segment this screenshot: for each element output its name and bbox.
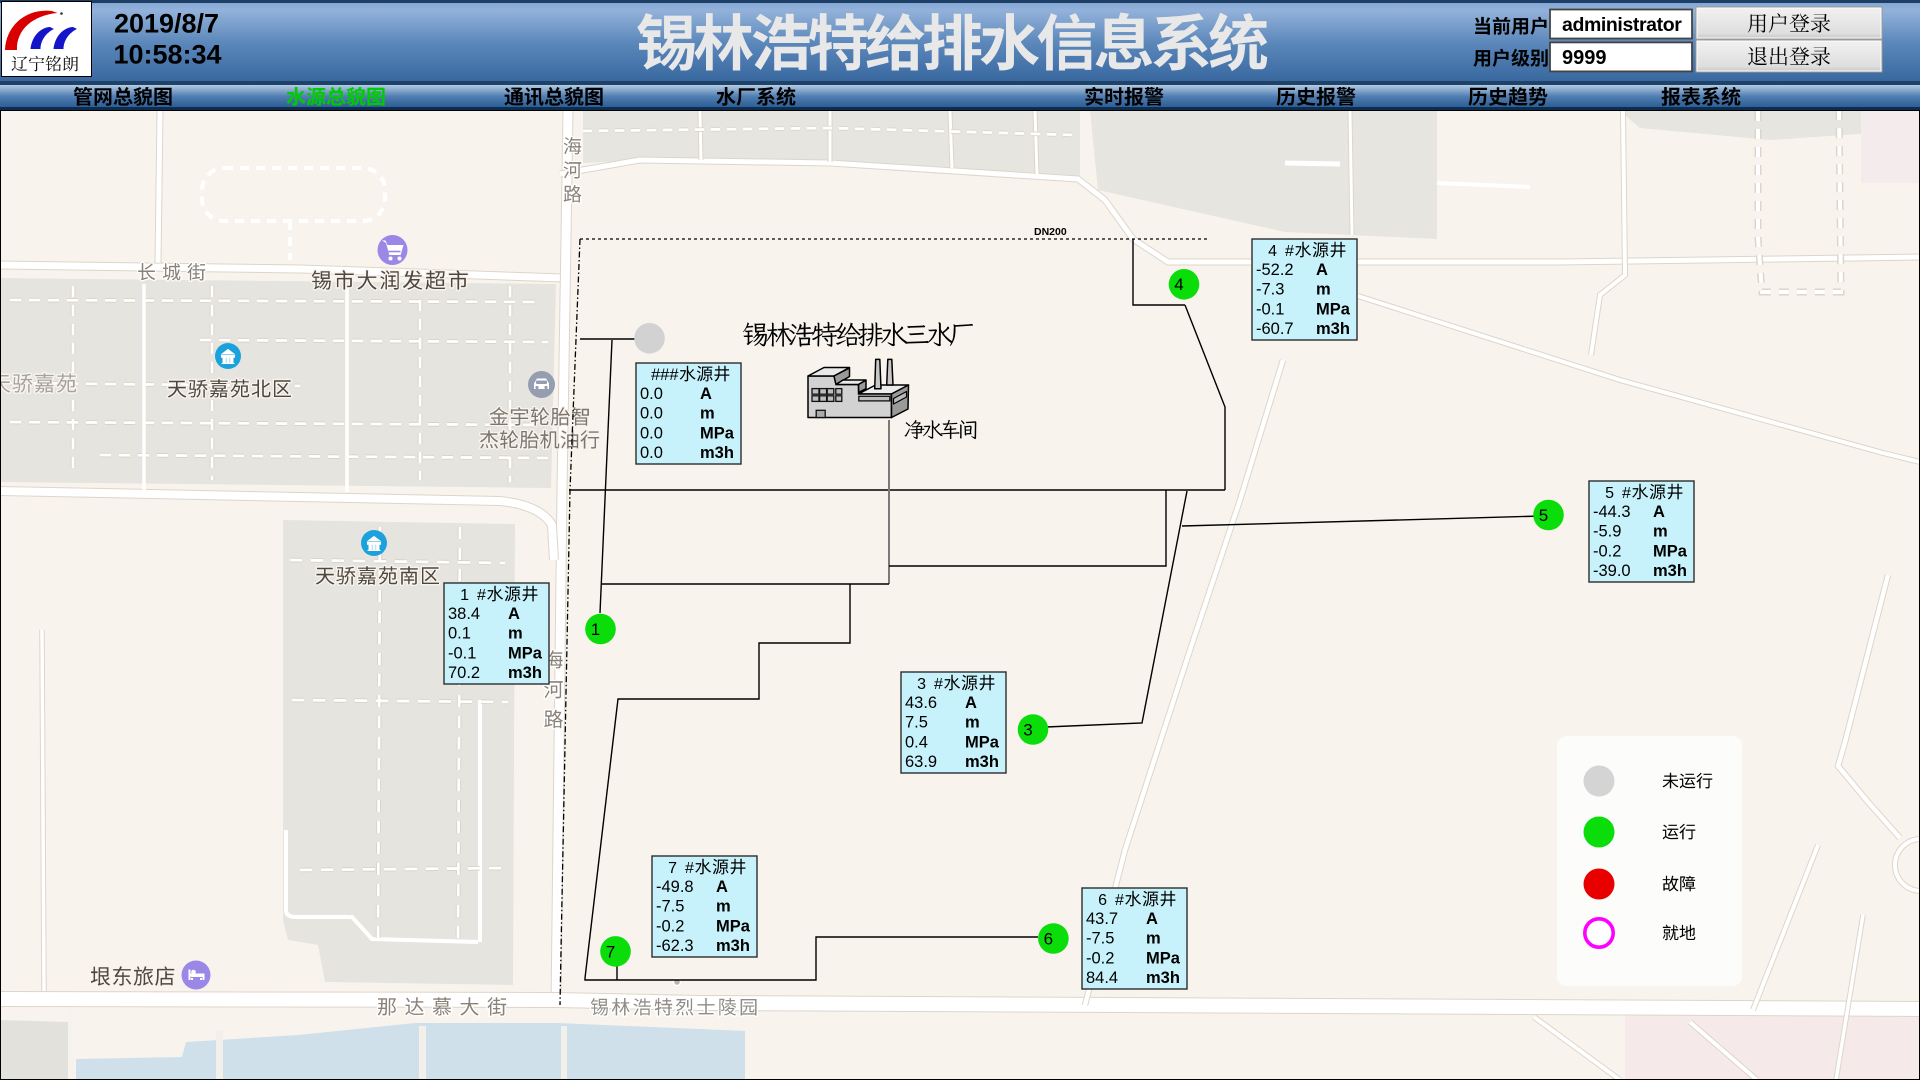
svg-text:MPa: MPa <box>508 644 543 662</box>
svg-text:-52.2: -52.2 <box>1256 261 1294 279</box>
svg-text:#: # <box>685 860 694 877</box>
svg-text:m3h: m3h <box>1146 969 1180 987</box>
svg-text:7.5: 7.5 <box>905 714 928 732</box>
svg-text:6: 6 <box>1044 929 1053 948</box>
svg-text:1: 1 <box>460 587 469 604</box>
svg-text:9999: 9999 <box>1562 47 1607 69</box>
svg-text:###: ### <box>651 366 679 384</box>
svg-text:m3h: m3h <box>965 753 999 771</box>
svg-text:MPa: MPa <box>1653 542 1688 560</box>
svg-text:m3h: m3h <box>508 664 542 682</box>
svg-text:MPa: MPa <box>1146 949 1181 967</box>
svg-text:4: 4 <box>1268 243 1277 260</box>
svg-text:m: m <box>716 898 731 916</box>
svg-text:0.0: 0.0 <box>640 405 663 423</box>
svg-text:m: m <box>1316 281 1331 299</box>
svg-text:-0.2: -0.2 <box>1593 542 1621 560</box>
svg-text:70.2: 70.2 <box>448 664 480 682</box>
svg-text:A: A <box>965 694 977 712</box>
svg-text:A: A <box>1653 503 1665 521</box>
svg-text:7: 7 <box>668 860 677 877</box>
svg-text:-0.1: -0.1 <box>1256 300 1284 318</box>
svg-text:-60.7: -60.7 <box>1256 320 1294 338</box>
svg-text:#: # <box>934 676 943 693</box>
svg-text:3: 3 <box>1023 720 1032 739</box>
svg-text:A: A <box>1146 910 1158 928</box>
svg-text:MPa: MPa <box>700 424 735 442</box>
svg-text:0.0: 0.0 <box>640 444 663 462</box>
svg-text:7: 7 <box>606 942 615 961</box>
svg-text:#: # <box>1622 485 1631 502</box>
svg-text:m3h: m3h <box>1316 320 1350 338</box>
svg-text:4: 4 <box>1174 275 1183 294</box>
svg-text:-39.0: -39.0 <box>1593 562 1631 580</box>
svg-text:6: 6 <box>1098 892 1107 909</box>
svg-text:m3h: m3h <box>1653 562 1687 580</box>
svg-text:m: m <box>1146 930 1161 948</box>
svg-text:38.4: 38.4 <box>448 605 480 623</box>
svg-text:A: A <box>700 385 712 403</box>
svg-text:m: m <box>1653 523 1668 541</box>
svg-text:#: # <box>477 587 486 604</box>
svg-text:63.9: 63.9 <box>905 753 937 771</box>
svg-text:m: m <box>965 714 980 732</box>
svg-text:A: A <box>716 878 728 896</box>
svg-text:A: A <box>1316 261 1328 279</box>
svg-text:A: A <box>508 605 520 623</box>
svg-text:0.0: 0.0 <box>640 385 663 403</box>
svg-text:5: 5 <box>1539 506 1548 525</box>
svg-text:2019/8/7: 2019/8/7 <box>114 9 219 39</box>
svg-text:#: # <box>1285 243 1294 260</box>
svg-text:3: 3 <box>917 676 926 693</box>
svg-text:0.4: 0.4 <box>905 733 928 751</box>
svg-text:MPa: MPa <box>716 917 751 935</box>
svg-text:MPa: MPa <box>1316 300 1351 318</box>
svg-text:84.4: 84.4 <box>1086 969 1118 987</box>
svg-text:m3h: m3h <box>700 444 734 462</box>
svg-text:-0.1: -0.1 <box>448 644 476 662</box>
svg-text:MPa: MPa <box>965 733 1000 751</box>
svg-text:-0.2: -0.2 <box>656 917 684 935</box>
svg-text:DN200: DN200 <box>1034 226 1067 238</box>
svg-text:-7.5: -7.5 <box>656 898 684 916</box>
svg-text:#: # <box>1115 892 1124 909</box>
svg-text:43.6: 43.6 <box>905 694 937 712</box>
svg-text:administrator: administrator <box>1562 14 1682 36</box>
svg-text:1: 1 <box>591 620 600 639</box>
svg-text:m3h: m3h <box>716 937 750 955</box>
svg-text:m: m <box>700 405 715 423</box>
svg-text:m: m <box>508 625 523 643</box>
svg-text:-49.8: -49.8 <box>656 878 694 896</box>
svg-text:0.0: 0.0 <box>640 424 663 442</box>
svg-text:43.7: 43.7 <box>1086 910 1118 928</box>
svg-text:-44.3: -44.3 <box>1593 503 1631 521</box>
svg-text:5: 5 <box>1605 485 1614 502</box>
svg-text:-7.3: -7.3 <box>1256 281 1284 299</box>
svg-text:-5.9: -5.9 <box>1593 523 1621 541</box>
svg-text:0.1: 0.1 <box>448 625 471 643</box>
svg-text:-62.3: -62.3 <box>656 937 694 955</box>
svg-text:-7.5: -7.5 <box>1086 930 1114 948</box>
svg-text:10:58:34: 10:58:34 <box>113 40 221 70</box>
svg-text:-0.2: -0.2 <box>1086 949 1114 967</box>
